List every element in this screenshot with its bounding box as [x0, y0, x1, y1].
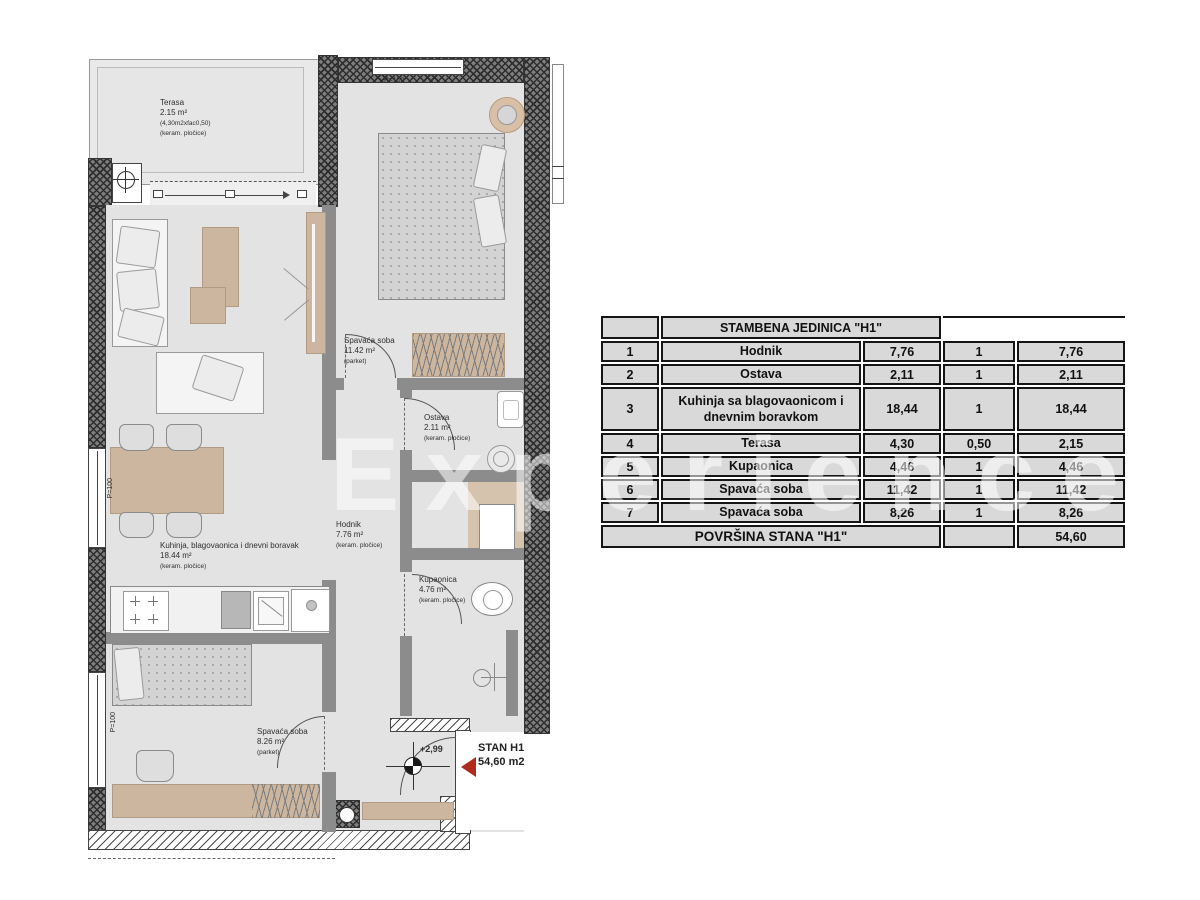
- bedroom1-label: Spavaća soba 11.42 m² (parket): [344, 336, 395, 366]
- kupaonica-floor: (keram. pločice): [419, 597, 465, 605]
- row-total: 4,46: [1017, 456, 1125, 477]
- kitchen-name: Kuhinja, blagovaonica i dnevni boravak: [160, 541, 299, 551]
- ostava-floor: (keram. pločice): [424, 435, 470, 443]
- row-area: 8,26: [863, 502, 941, 523]
- level-value: +2,99: [420, 744, 443, 755]
- door-leaf-bathroom: [404, 574, 405, 636]
- facade-tick: [552, 178, 564, 179]
- row-area: 11,42: [863, 479, 941, 500]
- kitchen-drainer: [221, 591, 251, 629]
- table-row: 6 Spavaća soba 11,42 1 11,42: [601, 479, 1125, 500]
- washing-machine-drum: [493, 451, 509, 467]
- row-factor: 1: [943, 341, 1015, 362]
- dining-table: [110, 447, 224, 514]
- row-total: 2,11: [1017, 364, 1125, 385]
- ostava-label: Ostava 2.11 m² (keram. pločice): [424, 413, 470, 443]
- shower-drain-icon: [473, 669, 491, 687]
- kitchen-label: Kuhinja, blagovaonica i dnevni boravak 1…: [160, 541, 299, 571]
- window-glass-line: [375, 67, 461, 68]
- hodnik-floor: (keram. pločice): [336, 542, 382, 550]
- burner-icon: [130, 596, 140, 606]
- hob-knob-icon: [306, 600, 317, 611]
- row-factor: 1: [943, 502, 1015, 523]
- table-row: 2 Ostava 2,11 1 2,11: [601, 364, 1125, 385]
- table-row: 5 Kupaonica 4,46 1 4,46: [601, 456, 1125, 477]
- entrance-arrow-icon: [461, 757, 476, 777]
- door-track-block: [225, 190, 235, 198]
- dining-chair: [119, 424, 154, 451]
- row-total: 7,76: [1017, 341, 1125, 362]
- area-table: STAMBENA JEDINICA "H1" 1 Hodnik 7,76 1 7…: [599, 314, 1127, 550]
- wardrobe-hangers: [252, 784, 320, 818]
- row-factor: 1: [943, 479, 1015, 500]
- footer-empty-cell: [943, 525, 1015, 548]
- wall-shower-partition: [506, 630, 518, 716]
- table-header-row: STAMBENA JEDINICA "H1": [601, 316, 1125, 339]
- row-name: Ostava: [661, 364, 861, 385]
- door-track-block: [153, 190, 163, 198]
- desk-chair: [136, 750, 174, 782]
- row-name: Hodnik: [661, 341, 861, 362]
- kitchen-area: 18.44 m²: [160, 551, 299, 561]
- exterior-wall-left-lower: [88, 788, 106, 832]
- window-glass-line: [97, 675, 98, 785]
- row-factor: 1: [943, 387, 1015, 431]
- terrace-calc: (4,30m2xfac0,50): [160, 120, 211, 128]
- sofa-cushion: [116, 225, 161, 268]
- unit-area: 54,60 m2: [478, 756, 524, 770]
- ostava-area: 2.11 m²: [424, 423, 470, 433]
- bath-cabinet: [479, 504, 515, 550]
- hodnik-area: 7.76 m²: [336, 530, 382, 540]
- table-title: STAMBENA JEDINICA "H1": [661, 316, 941, 339]
- shoe-cabinet: [362, 802, 454, 820]
- row-total: 8,26: [1017, 502, 1125, 523]
- sliding-arrow-head-icon: [283, 191, 290, 199]
- row-name: Spavaća soba: [661, 502, 861, 523]
- bedroom2-label: Spavaća soba 8.26 m² (parket): [257, 727, 308, 757]
- row-area: 4,46: [863, 456, 941, 477]
- exterior-wall-left-mid: [88, 548, 106, 672]
- wall-column-block: [88, 158, 112, 206]
- row-num: 5: [601, 456, 659, 477]
- bedroom2-name: Spavaća soba: [257, 727, 308, 737]
- footer-total: 54,60: [1017, 525, 1125, 548]
- wall-ostava-bottom: [412, 470, 524, 482]
- terrace-label: Terasa 2.15 m² (4,30m2xfac0,50) (keram. …: [160, 98, 211, 138]
- window-living: [88, 448, 106, 548]
- ostava-name: Ostava: [424, 413, 470, 423]
- kitchen-floor: (keram. pločice): [160, 563, 299, 571]
- row-name: Kuhinja sa blagovaonicom idnevnim boravk…: [661, 387, 861, 431]
- burner-icon: [148, 614, 158, 624]
- table-row: 1 Hodnik 7,76 1 7,76: [601, 341, 1125, 362]
- unit-name: STAN H1: [478, 742, 524, 756]
- row-name: Spavaća soba: [661, 479, 861, 500]
- row-num: 6: [601, 479, 659, 500]
- facade-tick: [552, 166, 564, 167]
- parapet-label-bottom: P=100: [110, 712, 119, 732]
- pillow: [113, 647, 144, 701]
- toilet-bowl: [483, 590, 503, 610]
- header-ghost-cell: [943, 316, 1125, 339]
- survey-mark-vline: [125, 167, 126, 193]
- wall-corridor-right-c: [400, 636, 412, 716]
- exterior-wall-right: [524, 57, 550, 734]
- exterior-wall-bottom: [88, 830, 470, 850]
- tv-cabinet: [306, 212, 326, 354]
- row-num: 2: [601, 364, 659, 385]
- level-mark-icon: [404, 757, 422, 775]
- bedroom2-area: 8.26 m²: [257, 737, 308, 747]
- wardrobe-hangers: [412, 333, 505, 377]
- terrace-area: 2.15 m²: [160, 108, 211, 118]
- row-area: 4,30: [863, 433, 941, 454]
- exterior-wall-terrace-right: [318, 55, 338, 207]
- dining-chair: [119, 512, 154, 538]
- site-boundary-dashed: [88, 858, 335, 859]
- row-total: 11,42: [1017, 479, 1125, 500]
- kupaonica-label: Kupaonica 4.76 m² (keram. pločice): [419, 575, 465, 605]
- window-bedroom-top: [372, 59, 464, 75]
- footer-label: POVRŠINA STANA "H1": [601, 525, 941, 548]
- parapet-label-mid: P=100: [107, 478, 116, 498]
- unit-label-block: STAN H1 54,60 m2: [478, 742, 524, 770]
- sliding-arrow-line: [165, 195, 283, 196]
- shower-drain-hline: [481, 677, 509, 678]
- row-factor: 1: [943, 456, 1015, 477]
- burner-icon: [148, 596, 158, 606]
- facade-ledge: [552, 64, 564, 204]
- table-row: 7 Spavaća soba 8,26 1 8,26: [601, 502, 1125, 523]
- pipe-column-icon: [339, 807, 355, 823]
- shower-drain-vline: [494, 663, 495, 691]
- row-factor: 0,50: [943, 433, 1015, 454]
- row-total: 18,44: [1017, 387, 1125, 431]
- wall-corridor-right-a: [400, 388, 412, 398]
- header-empty-cell: [601, 316, 659, 339]
- bedroom1-area: 11.42 m²: [344, 346, 395, 356]
- bedroom2-floor: (parket): [257, 749, 308, 757]
- door-track-block: [297, 190, 307, 198]
- row-num: 3: [601, 387, 659, 431]
- hodnik-name: Hodnik: [336, 520, 382, 530]
- door-leaf-bedroom2: [324, 716, 325, 770]
- survey-mark-hline: [113, 179, 139, 180]
- window-glass-line: [97, 451, 98, 545]
- window-bedroom2: [88, 672, 106, 788]
- row-area: 18,44: [863, 387, 941, 431]
- parapet-label-top: P=100: [384, 77, 404, 86]
- dining-chair: [166, 512, 202, 538]
- wall-corridor-left-upper: [322, 390, 336, 460]
- kupaonica-area: 4.76 m²: [419, 585, 465, 595]
- wall-bedroom1-bottom-a: [336, 378, 344, 390]
- table-row: 4 Terasa 4,30 0,50 2,15: [601, 433, 1125, 454]
- row-total: 2,15: [1017, 433, 1125, 454]
- row-num: 7: [601, 502, 659, 523]
- row-area: 7,76: [863, 341, 941, 362]
- table-row: 3 Kuhinja sa blagovaonicom idnevnim bora…: [601, 387, 1125, 431]
- floor-lamp-inner: [497, 105, 517, 125]
- washbasin-bowl: [503, 400, 519, 420]
- terrace-name: Terasa: [160, 98, 211, 108]
- row-num: 1: [601, 341, 659, 362]
- row-name: Kupaonica: [661, 456, 861, 477]
- kupaonica-name: Kupaonica: [419, 575, 465, 585]
- survey-mark-icon: [117, 171, 135, 189]
- row-name: Terasa: [661, 433, 861, 454]
- row-factor: 1: [943, 364, 1015, 385]
- bedroom1-floor: (parket): [344, 358, 395, 366]
- bedroom1-name: Spavaća soba: [344, 336, 395, 346]
- burner-icon: [130, 614, 140, 624]
- dining-chair: [166, 424, 202, 451]
- wall-bedroom1-bottom-b: [397, 378, 524, 390]
- tv-screen-line: [312, 224, 315, 342]
- hodnik-label: Hodnik 7.76 m² (keram. pločice): [336, 520, 382, 550]
- wall-corridor-right-b: [400, 450, 412, 572]
- row-area: 2,11: [863, 364, 941, 385]
- exterior-wall-left-upper: [88, 206, 106, 448]
- sofa-cushion: [116, 268, 160, 312]
- wall-corridor-left-lower: [322, 772, 336, 832]
- terrace-floor: (keram. pločice): [160, 130, 211, 138]
- floorplan-page: Terasa 2.15 m² (4,30m2xfac0,50) (keram. …: [0, 0, 1200, 900]
- table-footer-row: POVRŠINA STANA "H1" 54,60: [601, 525, 1125, 548]
- side-table: [190, 287, 226, 324]
- row-num: 4: [601, 433, 659, 454]
